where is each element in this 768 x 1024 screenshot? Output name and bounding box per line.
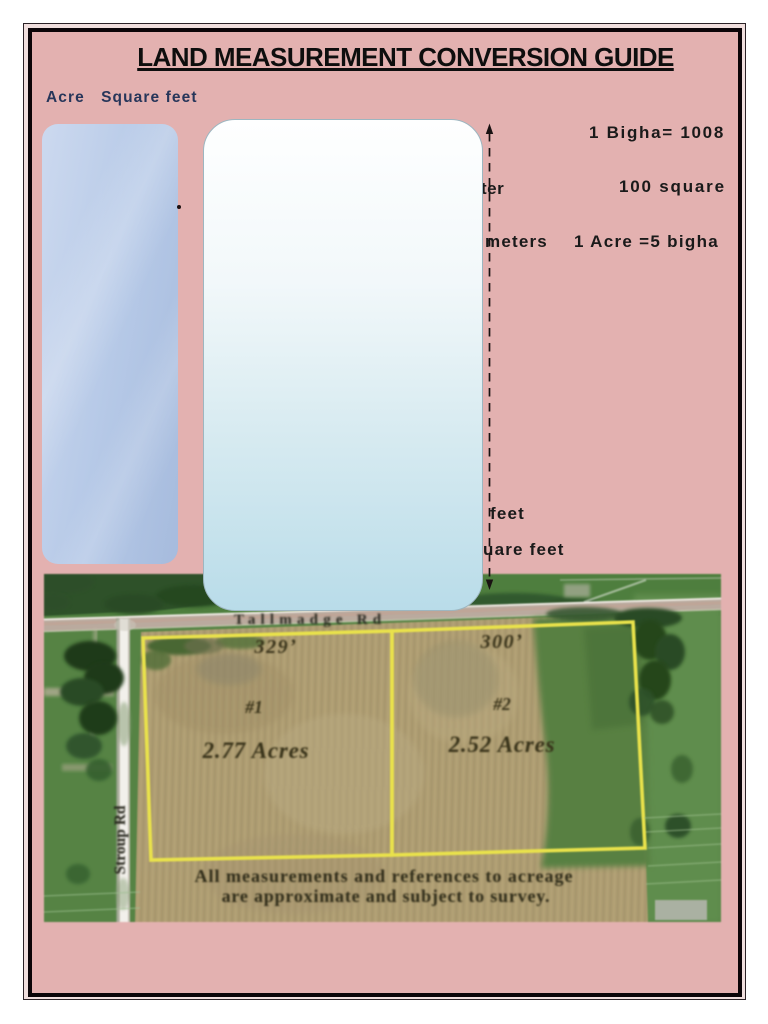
svg-text:Stroup Rd: Stroup Rd [112, 805, 129, 874]
svg-text:300ʼ: 300ʼ [479, 631, 523, 653]
svg-text:All measurements and reference: All measurements and references to acrea… [194, 866, 573, 886]
svg-text:2.77 Acres: 2.77 Acres [202, 738, 310, 763]
svg-text:are approximate and subject to: are approximate and subject to survey. [222, 886, 551, 906]
svg-text:Tallmadge Rd: Tallmadge Rd [234, 612, 386, 628]
svg-text:#1: #1 [244, 697, 263, 717]
svg-text:2.52 Acres: 2.52 Acres [448, 732, 556, 757]
svg-text:329ʼ: 329ʼ [253, 636, 297, 658]
svg-text:#2: #2 [492, 694, 511, 714]
